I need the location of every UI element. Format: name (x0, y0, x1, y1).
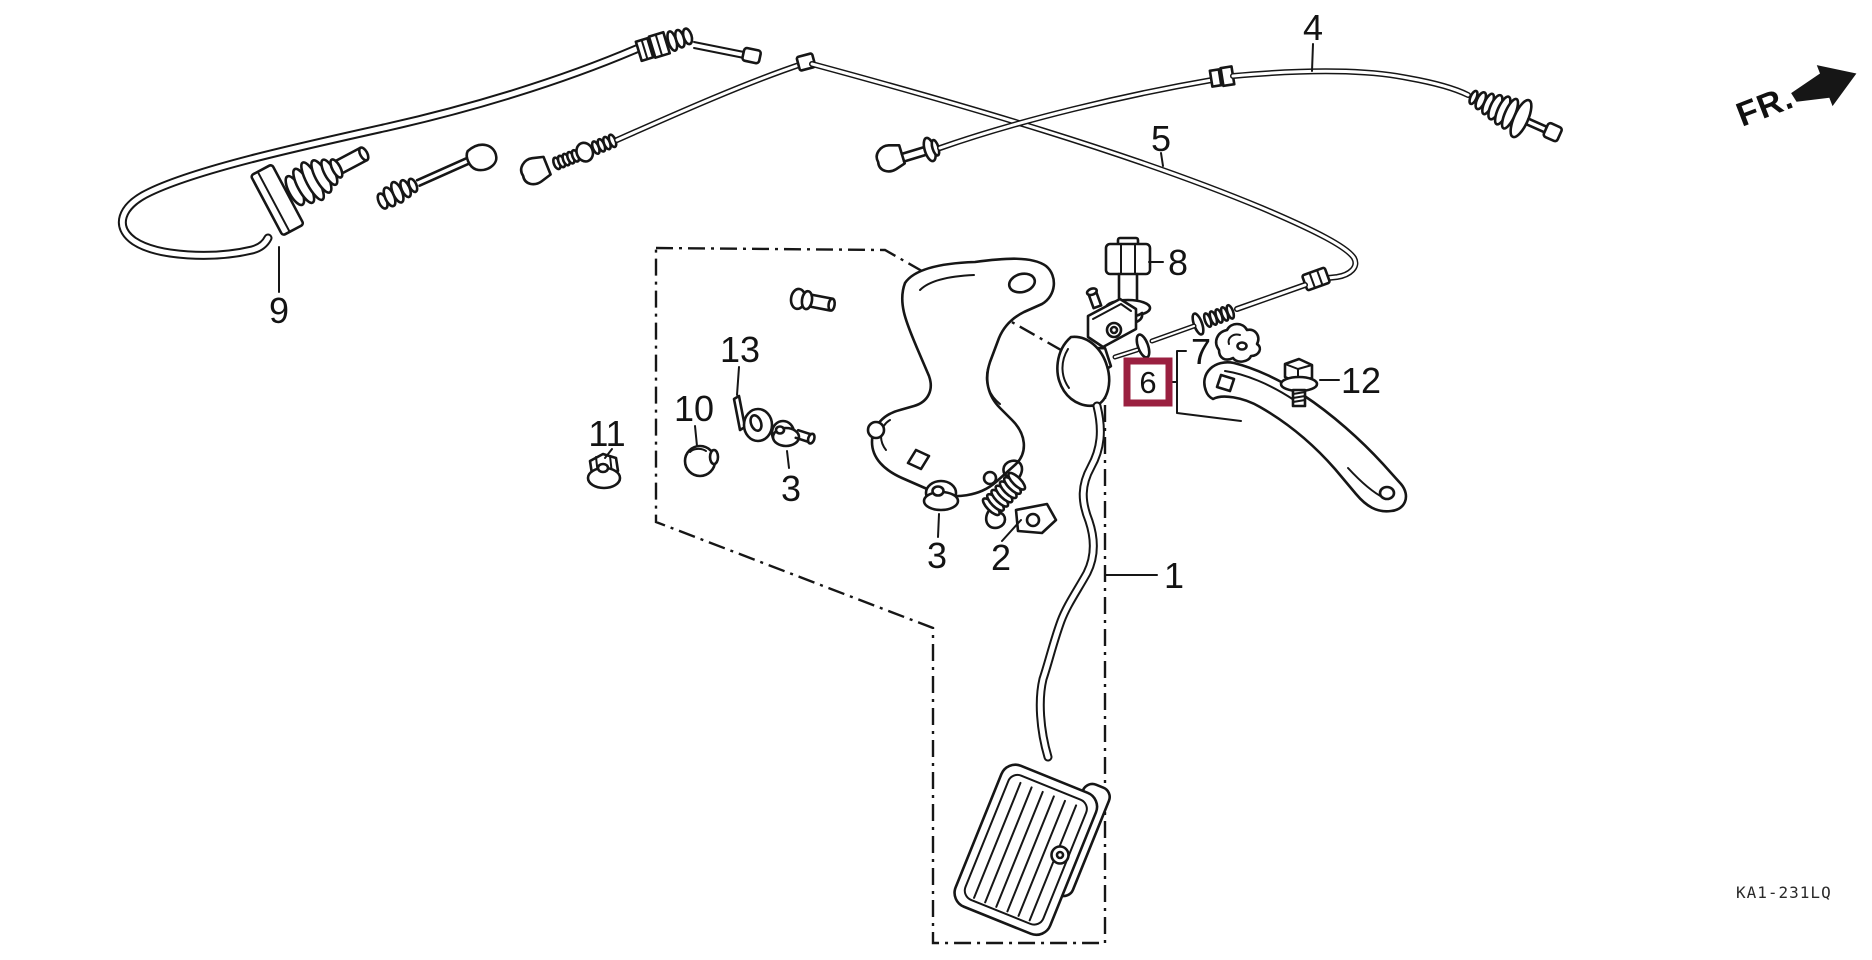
leader-line-3a (787, 451, 789, 468)
throttle-cable-4-drawing (874, 66, 1568, 176)
callout-9[interactable]: 9 (269, 290, 289, 331)
clip-7-drawing (1216, 324, 1260, 362)
leader-line-13 (737, 367, 739, 395)
callout-3b[interactable]: 3 (927, 535, 947, 576)
cable-inner-wire-end (374, 139, 500, 214)
callout-10[interactable]: 10 (674, 388, 714, 429)
parts-diagram-page: 9 4 5 8 13 10 11 3 3 2 1 7 12 6 FR. KA1-… (0, 0, 1872, 960)
callout-4[interactable]: 4 (1303, 7, 1323, 48)
callout-13[interactable]: 13 (720, 329, 760, 370)
diagram-code: KA1-231LQ (1736, 883, 1832, 902)
highlighted-callout-6[interactable]: 6 (1127, 361, 1169, 403)
callout-3a[interactable]: 3 (781, 468, 801, 509)
callout-6[interactable]: 6 (1139, 365, 1156, 400)
cable4-boot-end (1463, 78, 1568, 154)
callout-12[interactable]: 12 (1341, 360, 1381, 401)
bushing-washer-drawing (744, 409, 772, 441)
fr-direction-indicator: FR. (1731, 53, 1864, 139)
nut-3a-drawing (772, 421, 816, 446)
nut-3b-drawing (924, 481, 958, 510)
nut-11-drawing (588, 454, 620, 488)
cable5-end-disc (1134, 333, 1152, 359)
stud-bolt-drawing (790, 288, 836, 314)
callout-8[interactable]: 8 (1168, 242, 1188, 283)
pedal-pad (950, 760, 1102, 939)
leader-lines (279, 44, 1339, 575)
callout-7[interactable]: 7 (1191, 331, 1211, 372)
cable5-left-end-fitting (518, 126, 620, 187)
cap-10-drawing (685, 446, 718, 476)
callout-5[interactable]: 5 (1151, 118, 1171, 159)
cable4-left-end-fitting (874, 131, 942, 176)
callout-1[interactable]: 1 (1164, 555, 1184, 596)
throttle-cable-9-drawing (122, 25, 761, 256)
callout-11[interactable]: 11 (588, 413, 625, 454)
leader-line-10 (695, 426, 697, 446)
leader-line-3b (938, 514, 939, 537)
parts-diagram-canvas: 9 4 5 8 13 10 11 3 3 2 1 7 12 6 FR. KA1-… (0, 0, 1872, 960)
leader-line-4 (1312, 44, 1313, 71)
cable5-wound-section (1203, 304, 1236, 327)
callouts: 9 4 5 8 13 10 11 3 3 2 1 7 12 (269, 7, 1381, 596)
fr-arrow-icon (1785, 53, 1864, 118)
cable-adjuster-end (636, 25, 762, 64)
fr-label: FR. (1731, 78, 1799, 134)
callout-2[interactable]: 2 (991, 537, 1011, 578)
